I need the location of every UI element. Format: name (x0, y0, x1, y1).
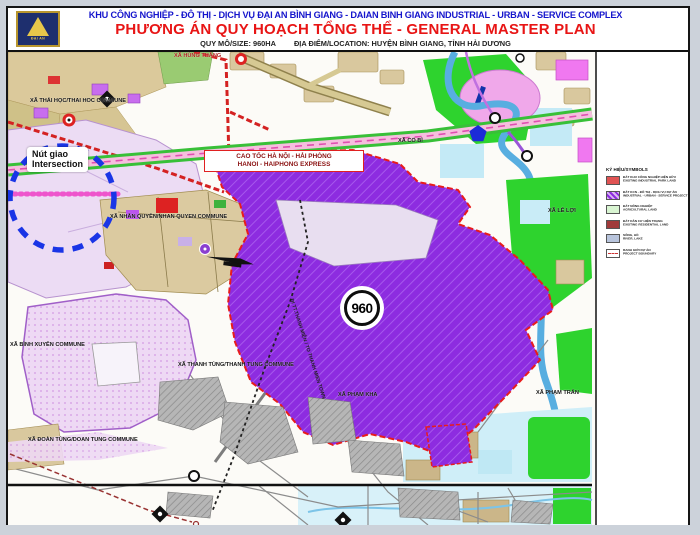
location-label: ĐỊA ĐIỂM/LOCATION: HUYỆN BÌNH GIANG, TỈN… (294, 39, 511, 48)
legend-swatch-industrial-icon (606, 176, 620, 185)
legend-item: SÔNG, HỒRIVER, LAKE (606, 234, 688, 246)
commune-label-nhan-quyen: XÃ NHÂN QUYỀN/NHAN QUYEN COMMUNE (110, 214, 227, 220)
legend-swatch-agriculture-icon (606, 205, 620, 214)
legend-swatch-boundary-icon (606, 249, 620, 258)
intersection-label-en: Intersection (32, 159, 83, 169)
legend: KÝ HIỆU/SYMBOLS ĐẤT KHU CÔNG NGHIỆP HIỆN… (606, 168, 688, 263)
commune-label-pham-kha: XÃ PHẠM KHA (338, 392, 377, 398)
commune-label-binh-xuyen: XÃ BÌNH XUYÊN COMMUNE (10, 342, 85, 348)
commune-label-thanh-tung: XÃ THANH TÙNG/THANH TUNG COMMUNE (178, 362, 294, 368)
legend-label-en: EXISTING RESIDENTIAL LAND (623, 223, 668, 227)
title-block: ĐẠI AN KHU CÔNG NGHIỆP - ĐÔ THỊ - DỊCH V… (8, 8, 688, 52)
legend-title: KÝ HIỆU/SYMBOLS (606, 168, 671, 173)
logo-triangle-icon (27, 17, 49, 36)
legend-label-en: PROJECT BOUNDARY (623, 252, 666, 256)
titles: KHU CÔNG NGHIỆP - ĐÔ THỊ - DỊCH VỤ ĐẠI A… (68, 10, 643, 48)
plan-sheet: ĐẠI AN KHU CÔNG NGHIỆP - ĐÔ THỊ - DỊCH V… (6, 6, 690, 525)
page: { "header": { "logo_label": "ĐẠI AN", "t… (0, 0, 700, 535)
commune-label-thai-hoc: XÃ THÁI HỌC/THAI HOC COMMUNE (30, 98, 126, 104)
legend-label-en: RIVER, LAKE (623, 238, 666, 242)
legend-item: ĐẤT NÔNG NGHIỆPAGRICULTURAL LAND (606, 205, 688, 217)
legend-label-en: EXISTING INDUSTRIAL PARK LAND (623, 180, 676, 184)
legend-label-en: INDUSTRIAL - URBAN - SERVICE PROJECT (623, 194, 687, 198)
plan-title: PHƯƠNG ÁN QUY HOẠCH TỔNG THỂ - GENERAL M… (68, 21, 643, 38)
site-area-badge: 960 (344, 290, 380, 326)
size-label: QUY MÔ/SIZE: 960HA (200, 39, 276, 48)
commune-label-pham-tran: XÃ PHẠM TRẤN (536, 390, 579, 396)
commune-label-le-loi: XÃ LÊ LỢI (548, 208, 576, 214)
legend-item: RANH GIỚI DỰ ÁNPROJECT BOUNDARY (606, 249, 688, 261)
commune-label-co-bi: XÃ CỔ BÌ (398, 138, 423, 144)
intersection-label-vi: Nút giao (32, 149, 83, 159)
map-graphic (8, 52, 688, 525)
legend-item: ĐẤT DÂN CƯ HIỆN TRẠNGEXISTING RESIDENTIA… (606, 220, 688, 232)
expressway-label-en: HANOI - HAIPHONG EXPRESS (205, 161, 363, 169)
legend-swatch-residential-icon (606, 220, 620, 229)
master-plan-map: Nút giao Intersection CAO TỐC HÀ NỘI - H… (8, 52, 688, 525)
dai-an-logo: ĐẠI AN (16, 11, 60, 47)
expressway-callout: CAO TỐC HÀ NỘI - HẢI PHÒNG HANOI - HAIPH… (204, 150, 364, 172)
commune-label-doan-tung: XÃ ĐOÀN TÙNG/DOAN TUNG COMMUNE (28, 437, 138, 443)
legend-label-en: AGRICULTURAL LAND (623, 209, 666, 213)
legend-item: ĐẤT KHU CÔNG NGHIỆP HIỆN HỮUEXISTING IND… (606, 176, 688, 188)
legend-item: ĐẤT KCN - ĐÔ THỊ - DỊCH VỤ DỰ ÁNINDUSTRI… (606, 191, 688, 203)
legend-swatch-project-icon (606, 191, 620, 200)
project-title: KHU CÔNG NGHIỆP - ĐÔ THỊ - DỊCH VỤ ĐẠI A… (68, 10, 643, 20)
legend-swatch-water-icon (606, 234, 620, 243)
expressway-label-vi: CAO TỐC HÀ NỘI - HẢI PHÒNG (205, 153, 363, 161)
commune-label-hung-thang: XÃ HÙNG THẮNG (174, 53, 221, 59)
logo-caption: ĐẠI AN (31, 36, 45, 40)
plan-subtitle: QUY MÔ/SIZE: 960HAĐỊA ĐIỂM/LOCATION: HUY… (68, 39, 643, 48)
intersection-callout: Nút giao Intersection (27, 147, 88, 172)
